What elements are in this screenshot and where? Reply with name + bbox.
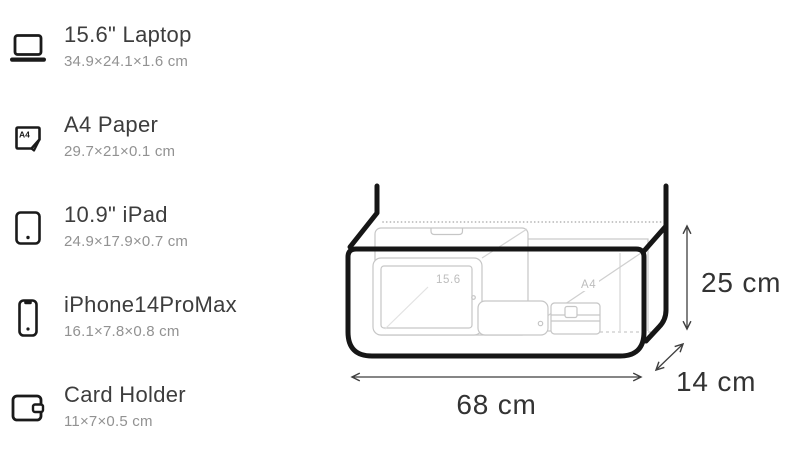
iphone-outline	[478, 301, 548, 335]
laptop-size-label: 15.6	[436, 274, 461, 286]
width-dimension-label: 68 cm	[348, 389, 645, 421]
depth-dimension-label: 14 cm	[676, 366, 756, 398]
height-dimension-label: 25 cm	[701, 267, 781, 299]
card-holder-outline	[551, 303, 600, 334]
bag-size-diagram: 15.6 A4 68 cm 25 cm 14 cm	[0, 0, 800, 455]
a4-sheet-label: A4	[578, 279, 599, 291]
bag-left-strap	[350, 186, 377, 247]
ipad-outline	[373, 258, 482, 335]
bag-right-strap	[646, 186, 666, 341]
